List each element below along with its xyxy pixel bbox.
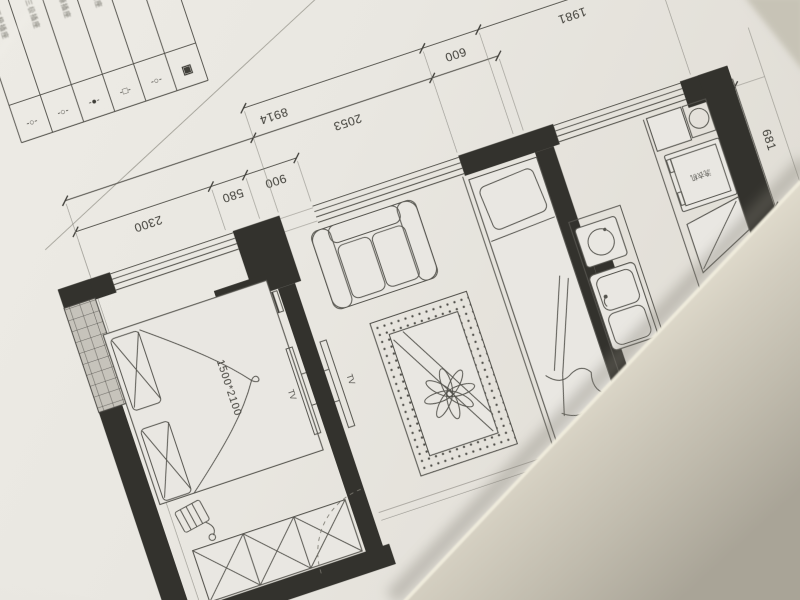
legend-symbol: -○- [149,74,163,87]
dim-900: 900 [263,171,288,191]
rug [370,291,517,476]
dim-2300: 2300 [132,213,164,235]
floorplan-drawing: 单相二极插座 单相三极插座 空调电源插座 网络电视插座 照明控制开关 卫生间排气… [0,0,800,600]
window-bedroom [110,233,238,290]
dim-681: 681 [759,127,779,152]
sofa [309,198,439,311]
floorplan-rotated-wrapper: 单相二极插座 单相三极插座 空调电源插座 网络电视插座 照明控制开关 卫生间排气… [0,0,800,600]
legend-label: 空调电源插座 [50,0,73,20]
dimension-row-overall: 8914 2053 [55,35,510,224]
photo-scene: 单相二极插座 单相三极插座 空调电源插座 网络电视插座 照明控制开关 卫生间排气… [0,0,800,600]
dim-8914: 8914 [258,105,290,127]
legend-label: 单相三极插座 [19,0,42,30]
legend-symbol: -○- [25,116,39,129]
tv-label-living: TV [345,373,357,386]
knob [729,267,746,284]
legend-symbol: ▣ [180,63,194,78]
nightstand-phone-icon [173,498,217,549]
dim-600: 600 [443,44,468,64]
legend-symbol: -●- [87,95,101,108]
legend-symbol: -□- [118,84,132,97]
dim-2053: 2053 [332,111,364,133]
balcony-threshold [280,208,317,232]
legend-table: 单相二极插座 单相三极插座 空调电源插座 网络电视插座 照明控制开关 卫生间排气… [0,0,208,143]
legend-label: 网络电视插座 [81,0,104,9]
dim-580: 580 [220,185,245,205]
sheet-frame-line [0,0,363,250]
legend-label: 单相二极插座 [0,0,11,41]
legend-symbol: -○- [56,105,70,118]
dim-1981: 1981 [556,4,588,26]
